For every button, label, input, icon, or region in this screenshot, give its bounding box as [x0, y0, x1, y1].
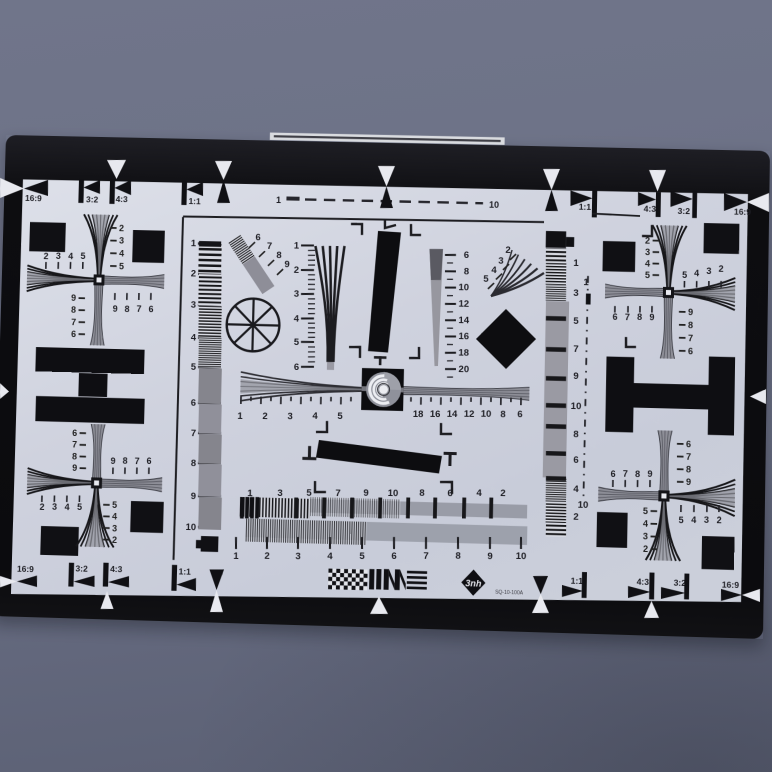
svg-text:5: 5: [80, 251, 85, 261]
svg-text:9: 9: [110, 456, 115, 466]
svg-text:1: 1: [233, 551, 239, 561]
svg-text:6: 6: [148, 304, 153, 314]
svg-text:6: 6: [191, 398, 196, 408]
svg-text:8: 8: [500, 409, 505, 419]
svg-text:6: 6: [688, 346, 693, 356]
svg-text:7: 7: [191, 428, 196, 438]
svg-text:3:2: 3:2: [75, 563, 88, 574]
svg-text:8: 8: [122, 456, 127, 466]
svg-text:3: 3: [295, 551, 301, 561]
svg-text:5: 5: [483, 274, 488, 284]
svg-text:6: 6: [610, 469, 615, 479]
svg-text:8: 8: [637, 312, 642, 322]
svg-text:7: 7: [71, 317, 76, 327]
svg-text:3: 3: [645, 247, 650, 257]
svg-text:10: 10: [578, 500, 589, 511]
svg-text:10: 10: [185, 522, 196, 533]
svg-text:9: 9: [647, 469, 652, 479]
svg-text:3:2: 3:2: [678, 206, 691, 216]
svg-text:6: 6: [447, 488, 453, 498]
svg-text:3: 3: [287, 411, 292, 421]
svg-text:8: 8: [573, 429, 578, 439]
svg-text:8: 8: [419, 488, 425, 498]
svg-text:8: 8: [72, 451, 77, 461]
svg-text:1:1: 1:1: [579, 202, 592, 212]
svg-text:20: 20: [458, 364, 469, 374]
svg-text:2: 2: [505, 245, 510, 255]
svg-text:1:1: 1:1: [178, 566, 191, 577]
svg-text:5: 5: [294, 337, 299, 347]
svg-text:3: 3: [191, 300, 196, 310]
svg-text:6: 6: [517, 409, 522, 419]
svg-text:4: 4: [112, 511, 117, 521]
svg-text:9: 9: [284, 259, 289, 269]
svg-text:18: 18: [458, 347, 469, 357]
svg-text:4: 4: [645, 258, 650, 268]
svg-text:3:2: 3:2: [86, 194, 99, 204]
svg-text:7: 7: [625, 312, 630, 322]
svg-text:16:9: 16:9: [722, 579, 740, 590]
svg-text:2: 2: [191, 268, 196, 278]
svg-text:16: 16: [458, 331, 469, 341]
svg-text:4:3: 4:3: [644, 204, 657, 214]
svg-text:2: 2: [119, 223, 124, 233]
svg-text:2: 2: [716, 515, 721, 525]
svg-text:4: 4: [64, 502, 69, 512]
svg-text:10: 10: [489, 199, 499, 209]
svg-text:16:9: 16:9: [25, 193, 42, 203]
svg-text:1: 1: [237, 411, 242, 421]
svg-text:4: 4: [643, 518, 648, 528]
svg-text:3: 3: [56, 251, 61, 261]
svg-text:2: 2: [719, 264, 724, 274]
svg-text:2: 2: [43, 251, 48, 261]
svg-text:18: 18: [413, 409, 424, 419]
svg-text:6: 6: [573, 455, 578, 465]
svg-text:8: 8: [635, 469, 640, 479]
svg-text:3: 3: [112, 523, 117, 533]
svg-text:9: 9: [363, 488, 369, 498]
svg-text:1: 1: [276, 195, 281, 205]
svg-text:3: 3: [498, 255, 503, 265]
svg-text:9: 9: [72, 463, 77, 473]
svg-text:10: 10: [516, 551, 527, 562]
svg-text:3: 3: [52, 502, 57, 512]
svg-text:6: 6: [72, 428, 77, 438]
svg-text:3: 3: [119, 236, 124, 246]
svg-text:1: 1: [247, 488, 253, 498]
svg-text:1: 1: [294, 240, 299, 250]
svg-text:5: 5: [678, 515, 683, 525]
svg-text:4: 4: [68, 251, 73, 261]
svg-text:9: 9: [487, 551, 493, 561]
svg-text:6: 6: [71, 329, 76, 339]
svg-text:2: 2: [264, 551, 270, 561]
svg-text:8: 8: [191, 458, 197, 468]
svg-text:12: 12: [464, 409, 475, 419]
svg-text:5: 5: [306, 488, 312, 498]
svg-text:8: 8: [455, 551, 461, 561]
svg-text:2: 2: [643, 544, 648, 554]
svg-text:5: 5: [337, 411, 342, 421]
svg-text:9: 9: [113, 304, 118, 314]
svg-text:8: 8: [464, 266, 469, 276]
svg-text:5: 5: [682, 270, 687, 280]
svg-text:12: 12: [458, 299, 469, 309]
svg-text:9: 9: [686, 477, 691, 487]
svg-text:9: 9: [649, 312, 654, 322]
svg-text:8: 8: [71, 305, 76, 315]
svg-text:7: 7: [686, 452, 691, 462]
svg-text:6: 6: [612, 312, 617, 322]
svg-text:3: 3: [643, 531, 648, 541]
svg-text:6: 6: [255, 232, 260, 242]
svg-text:10: 10: [481, 409, 492, 419]
svg-text:5: 5: [643, 506, 648, 516]
svg-text:5: 5: [77, 502, 82, 512]
svg-text:8: 8: [688, 320, 693, 330]
svg-text:9: 9: [71, 293, 76, 303]
svg-text:2: 2: [573, 512, 579, 522]
svg-text:9: 9: [688, 307, 693, 317]
svg-text:16:9: 16:9: [17, 563, 34, 574]
svg-text:4: 4: [119, 248, 124, 258]
svg-text:2: 2: [294, 265, 299, 275]
svg-text:4:3: 4:3: [115, 194, 128, 204]
svg-text:6: 6: [464, 250, 469, 260]
svg-text:7: 7: [72, 439, 77, 449]
svg-text:7: 7: [423, 551, 429, 561]
svg-text:5: 5: [645, 270, 650, 280]
svg-text:6: 6: [294, 362, 299, 372]
svg-text:3: 3: [573, 288, 578, 298]
svg-text:9: 9: [191, 491, 197, 501]
svg-text:4: 4: [691, 515, 696, 525]
svg-text:1:1: 1:1: [571, 575, 584, 586]
svg-text:7: 7: [335, 488, 341, 498]
svg-text:7: 7: [135, 456, 140, 466]
svg-text:6: 6: [391, 551, 397, 561]
svg-text:7: 7: [136, 304, 141, 314]
svg-text:3: 3: [277, 488, 283, 498]
svg-text:2: 2: [500, 488, 506, 498]
svg-text:2: 2: [262, 411, 267, 421]
svg-text:2: 2: [112, 535, 117, 545]
svg-text:14: 14: [458, 315, 470, 325]
svg-text:3: 3: [294, 289, 299, 299]
svg-text:6: 6: [146, 456, 151, 466]
svg-text:9: 9: [573, 371, 578, 381]
svg-text:7: 7: [267, 241, 272, 251]
svg-text:3: 3: [706, 266, 711, 276]
svg-text:6: 6: [686, 439, 691, 449]
svg-text:8: 8: [276, 250, 281, 260]
svg-text:7: 7: [623, 469, 628, 479]
svg-text:4: 4: [694, 268, 699, 278]
svg-text:1:1: 1:1: [188, 196, 201, 206]
svg-text:2: 2: [39, 502, 44, 512]
svg-text:1: 1: [191, 238, 196, 248]
svg-text:8: 8: [124, 304, 129, 314]
svg-text:8: 8: [686, 464, 691, 474]
svg-text:5: 5: [119, 261, 124, 271]
svg-text:SQ-10-100A: SQ-10-100A: [495, 590, 524, 597]
svg-text:10: 10: [458, 282, 469, 292]
svg-text:3nh: 3nh: [465, 578, 482, 589]
svg-text:16:9: 16:9: [734, 206, 752, 217]
svg-text:14: 14: [447, 409, 459, 420]
svg-text:5: 5: [359, 551, 365, 561]
svg-text:4:3: 4:3: [637, 576, 650, 587]
svg-text:5: 5: [573, 316, 578, 326]
svg-text:10: 10: [388, 488, 399, 499]
svg-text:7: 7: [573, 344, 578, 354]
svg-text:10: 10: [571, 401, 582, 412]
svg-text:7: 7: [688, 333, 693, 343]
svg-text:1: 1: [573, 258, 578, 268]
svg-text:5: 5: [112, 500, 117, 510]
svg-text:4:3: 4:3: [110, 564, 123, 575]
svg-text:3: 3: [704, 515, 709, 525]
svg-text:5: 5: [191, 362, 196, 372]
svg-text:16: 16: [430, 409, 441, 419]
